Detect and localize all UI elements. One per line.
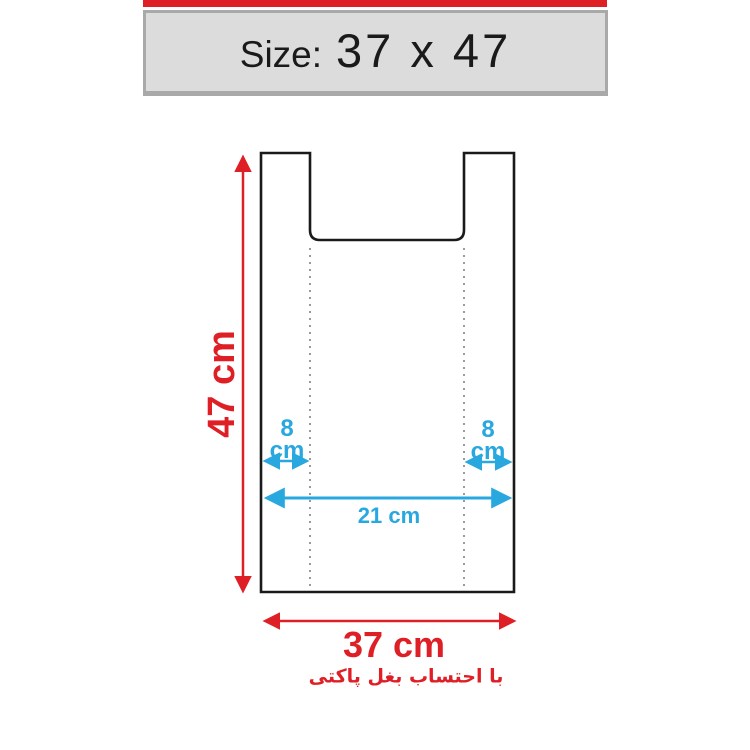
product-dimension-image: Size: 37 x 47 47 cm 8 cm	[0, 0, 750, 750]
gusset-footnote: با احتساب بغل پاکتی	[309, 668, 504, 687]
width-dimension-label: 37 cm	[343, 627, 445, 663]
right-gusset-unit: cm	[471, 441, 506, 463]
left-gusset-dimension-label: 8 cm	[270, 418, 305, 462]
inner-width-dimension-label: 21 cm	[358, 505, 420, 527]
right-gusset-dimension-label: 8 cm	[471, 419, 506, 463]
height-dimension-label: 47 cm	[203, 330, 241, 438]
left-gusset-unit: cm	[270, 440, 305, 462]
